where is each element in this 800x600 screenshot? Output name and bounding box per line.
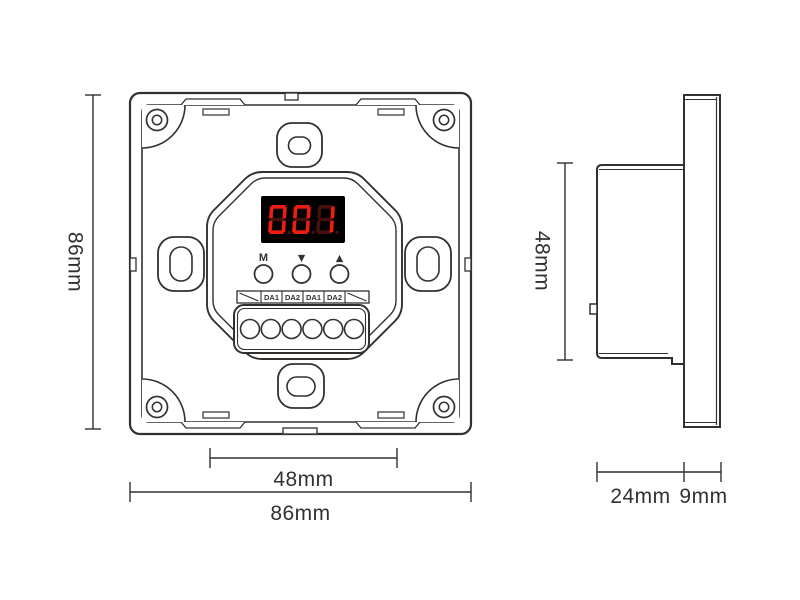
screw-hole-outer-tr bbox=[434, 110, 455, 131]
mounting-slot-bottom-outer bbox=[278, 364, 324, 408]
up-arrow-icon: ▲ bbox=[336, 253, 344, 264]
side-view-group bbox=[590, 95, 720, 427]
snap-tab-clip bbox=[378, 109, 404, 115]
technical-drawing-canvas: M ▼ ▲ DA1 DA2 DA1 DA2 bbox=[0, 0, 800, 600]
mounting-slot-right-outer bbox=[405, 237, 451, 291]
dim-depth-back-label: 24mm bbox=[610, 485, 670, 508]
dim-front-width-label: 86mm bbox=[270, 502, 330, 525]
down-button bbox=[293, 265, 311, 283]
m-button bbox=[255, 265, 273, 283]
edge-notch-top bbox=[285, 93, 298, 100]
snap-tab bbox=[181, 99, 245, 105]
screw-hole-outer-tl bbox=[147, 110, 168, 131]
terminal-label-da2-b: DA2 bbox=[327, 293, 342, 302]
terminal-label-da1-b: DA1 bbox=[306, 293, 321, 302]
side-mounting-tab bbox=[590, 304, 597, 314]
mounting-slot-top-outer bbox=[277, 123, 322, 167]
side-front-plate bbox=[684, 95, 720, 427]
terminal-label-da1-a: DA1 bbox=[264, 293, 279, 302]
technical-drawing-page: M ▼ ▲ DA1 DA2 DA1 DA2 bbox=[0, 0, 800, 600]
side-back-box bbox=[597, 165, 684, 364]
terminal-block bbox=[234, 305, 369, 353]
screw-hole-outer-bl bbox=[147, 397, 168, 418]
snap-tab bbox=[181, 422, 245, 428]
terminal-label-da2-a: DA2 bbox=[285, 293, 300, 302]
snap-tab-clip bbox=[378, 412, 404, 418]
front-view-group: M ▼ ▲ DA1 DA2 DA1 DA2 bbox=[130, 93, 471, 434]
dim-side-height-label: 48mm bbox=[530, 231, 553, 291]
terminal-label-strip: DA1 DA2 DA1 DA2 bbox=[237, 291, 369, 303]
edge-notch-right bbox=[465, 258, 471, 271]
snap-tab-clip bbox=[203, 109, 229, 115]
down-arrow-icon: ▼ bbox=[298, 253, 306, 264]
snap-tab-clip bbox=[203, 412, 229, 418]
screw-hole-outer-br bbox=[434, 397, 455, 418]
edge-notch-bottom bbox=[283, 428, 317, 434]
snap-tab bbox=[356, 99, 420, 105]
dim-front-height-label: 86mm bbox=[63, 232, 86, 292]
dim-depth-front-label: 9mm bbox=[679, 485, 727, 508]
up-button bbox=[331, 265, 349, 283]
snap-tab bbox=[356, 422, 420, 428]
m-button-label: M bbox=[259, 252, 268, 264]
edge-notch-left bbox=[130, 258, 136, 271]
dim-module-width-label: 48mm bbox=[273, 468, 333, 491]
mounting-slot-left-outer bbox=[158, 237, 204, 291]
